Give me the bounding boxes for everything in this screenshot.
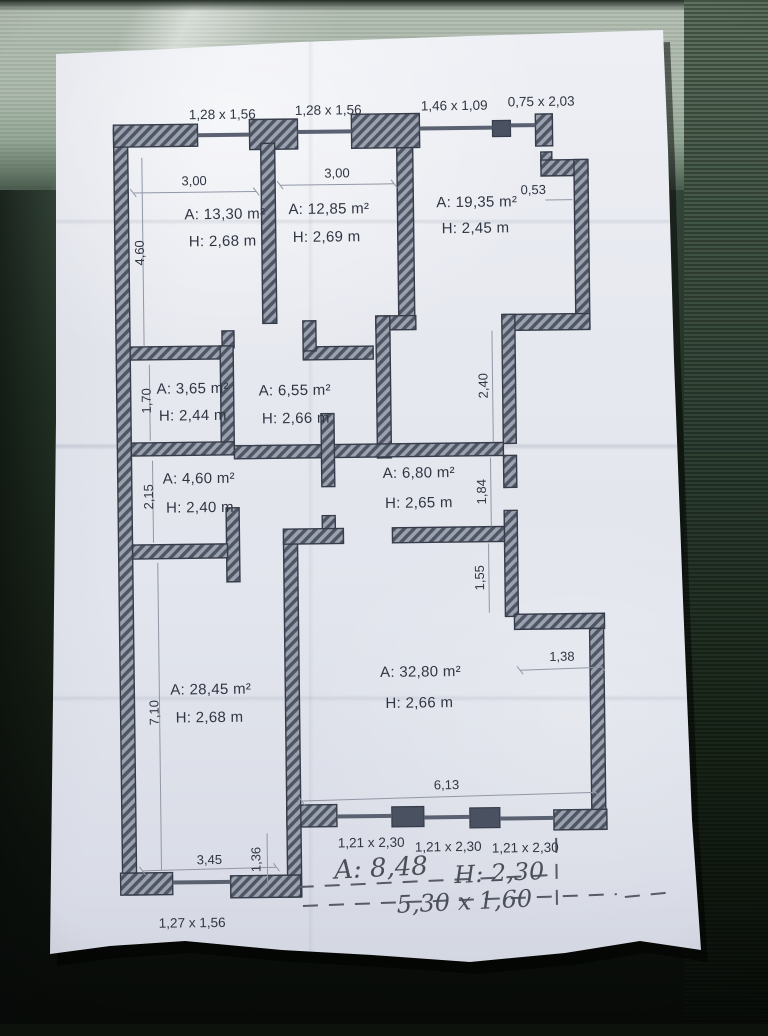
paper-sheet [0, 0, 768, 1024]
